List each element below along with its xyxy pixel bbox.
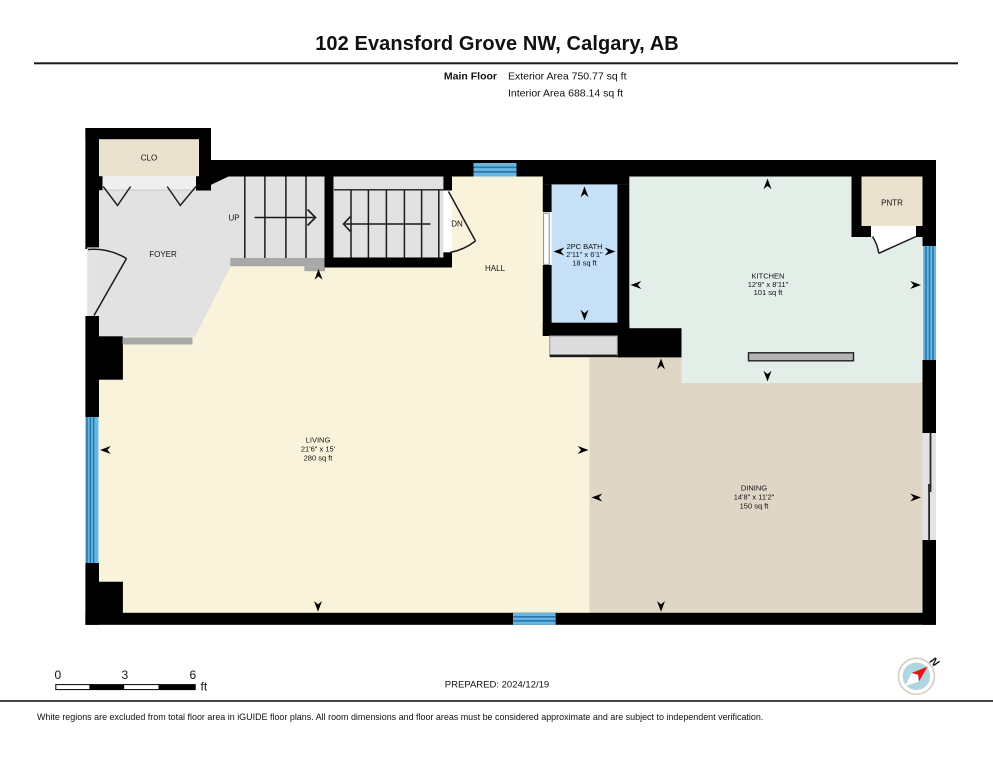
svg-text:DN: DN	[451, 220, 463, 229]
svg-text:FOYER: FOYER	[149, 250, 177, 259]
svg-text:HALL: HALL	[485, 264, 506, 273]
svg-text:101 sq ft: 101 sq ft	[754, 288, 784, 297]
svg-text:14'8" x 11'2": 14'8" x 11'2"	[734, 493, 775, 502]
svg-text:UP: UP	[228, 214, 239, 223]
svg-text:Main Floor: Main Floor	[444, 71, 497, 83]
svg-text:LIVING: LIVING	[306, 436, 331, 445]
svg-text:280 sq ft: 280 sq ft	[304, 454, 334, 463]
svg-text:18 sq ft: 18 sq ft	[572, 258, 598, 267]
svg-text:ft: ft	[201, 680, 208, 694]
svg-text:Interior Area 688.14 sq ft: Interior Area 688.14 sq ft	[508, 88, 623, 100]
svg-text:3: 3	[121, 668, 128, 682]
svg-text:DINING: DINING	[741, 484, 767, 493]
svg-text:CLO: CLO	[141, 154, 157, 163]
svg-text:0: 0	[54, 668, 61, 682]
svg-text:6: 6	[189, 668, 196, 682]
svg-text:PNTR: PNTR	[881, 199, 903, 208]
svg-text:Exterior Area 750.77 sq ft: Exterior Area 750.77 sq ft	[508, 71, 627, 83]
svg-text:21'6" x 15': 21'6" x 15'	[301, 445, 336, 454]
svg-text:White regions are excluded fro: White regions are excluded from total fl…	[37, 712, 763, 722]
svg-text:102 Evansford Grove NW, Calgar: 102 Evansford Grove NW, Calgary, AB	[315, 33, 679, 55]
svg-text:PREPARED: 2024/12/19: PREPARED: 2024/12/19	[445, 680, 549, 691]
svg-text:150 sq ft: 150 sq ft	[740, 502, 770, 511]
